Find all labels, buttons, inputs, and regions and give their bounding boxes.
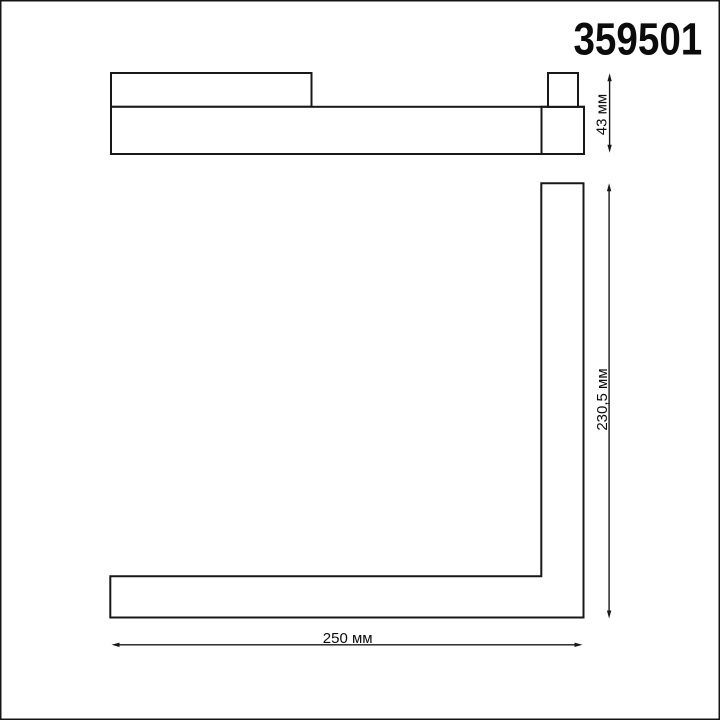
svg-text:250 мм: 250 мм bbox=[323, 630, 373, 647]
svg-text:230,5 мм: 230,5 мм bbox=[594, 368, 611, 430]
svg-text:43 мм: 43 мм bbox=[593, 94, 610, 135]
svg-text:359501: 359501 bbox=[573, 14, 702, 64]
